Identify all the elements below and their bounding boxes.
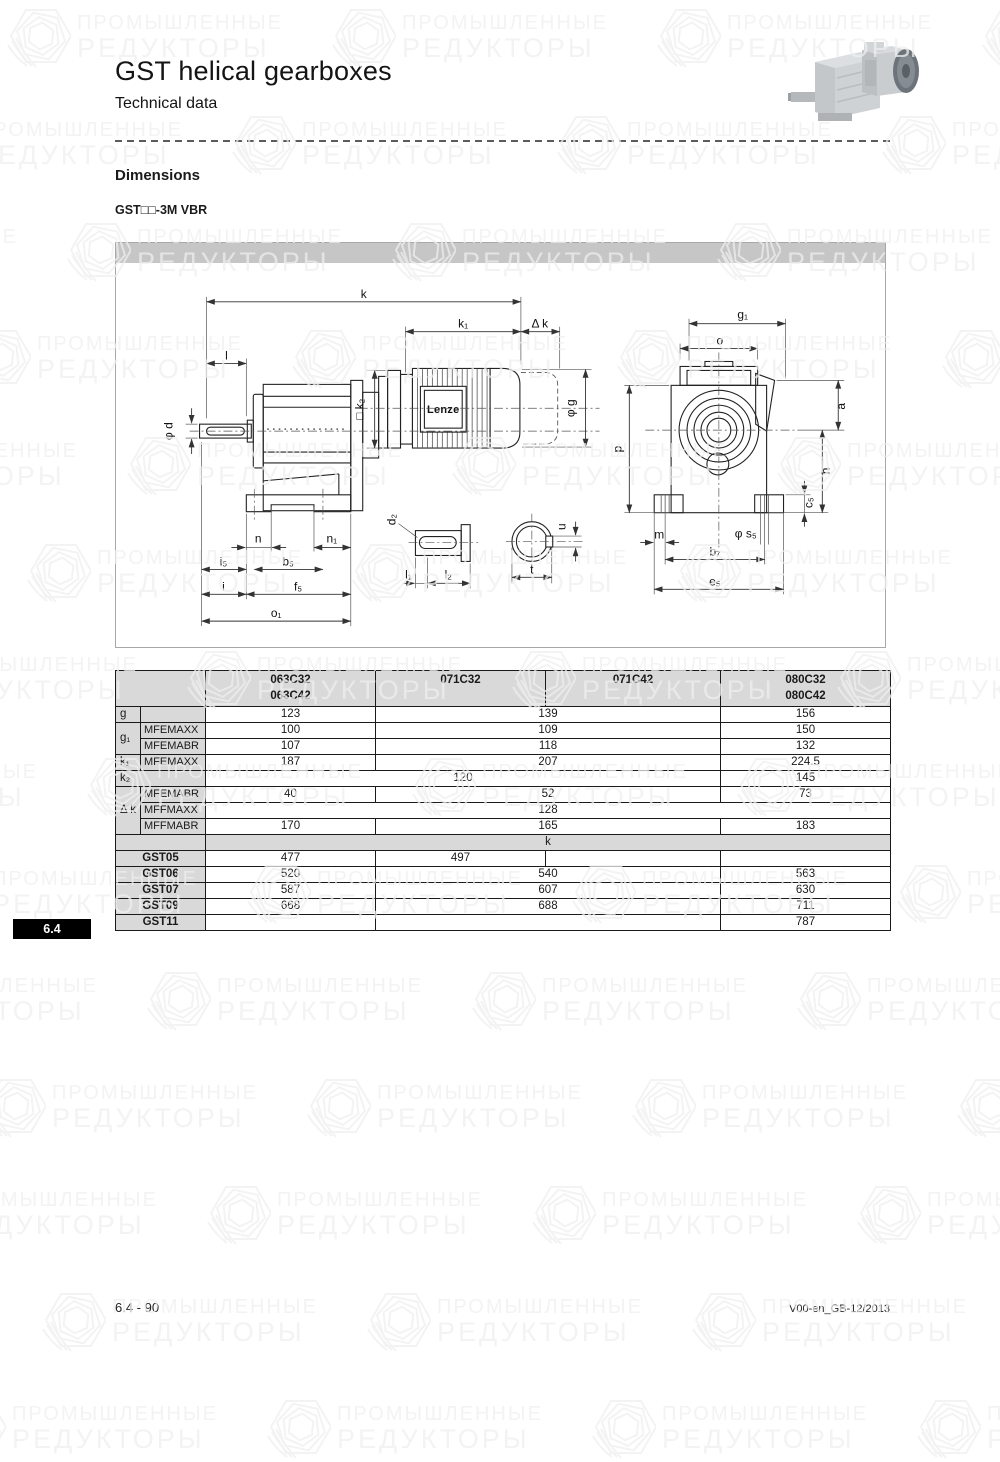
section-heading: Dimensions [115,167,200,184]
table-cell: Δ k [116,787,141,835]
table-cell: 145 [721,771,891,787]
table-row: g₁MFEMAXX100109150 [116,723,891,739]
dim-label-c5: c₅ [801,497,815,508]
watermark-text: ПРОМЫШЛЕННЫЕРЕДУКТОРЫ [337,1403,543,1455]
table-cell: 520 [206,867,376,883]
drawing-panel-bar [116,243,885,263]
table-cell [116,835,206,851]
table-row: GST09668688711 [116,899,891,915]
dim-label-phi-d: φ d [162,422,176,440]
table-row: GST07587607630 [116,883,891,899]
table-cell: 711 [721,899,891,915]
table-header-cell: 071C32 [376,671,546,707]
dim-label-p: p [610,445,624,452]
table-cell: k₁ [116,755,141,771]
dim-label-o: o [717,334,724,348]
chapter-tab: 6.4 [13,919,91,939]
table-cell: 123 [206,707,376,723]
table-cell: 170 [206,819,376,835]
dim-label-t: t [530,562,534,576]
table-row-label: GST06 [116,867,206,883]
dim-label-l: l [225,348,228,362]
dim-label-a: a [834,403,848,410]
page-subtitle: Technical data [115,95,217,113]
table-cell [376,915,721,931]
table-row: Δ kMFEMABR405273 [116,787,891,803]
table-row: MFFMAXX128 [116,803,891,819]
watermark: ПРОМЫШЛЕННЫЕРЕДУКТОРЫ [0,1396,218,1462]
table-cell: 563 [721,867,891,883]
table-cell: 40 [206,787,376,803]
dim-label-d2: d₂ [385,514,399,526]
dim-label-k2: □ k₂ [353,398,367,419]
dimension-labels: k k₁ Δ k l φ d □ k₂ φ g n n₁ i₅ b₅ i f₅ … [162,287,848,620]
brand-logo: Lenze [427,404,460,416]
table-header-cell: 071C42 [546,671,721,707]
dimension-drawing: Lenze [116,263,885,647]
footer-page-number: 6.4 - 90 [115,1300,159,1315]
table-cell: 477 [206,851,376,867]
dim-label-n: n [255,532,262,546]
table-cell: 109 [376,723,721,739]
footer-doc-code: V00-en_GB-12/2013 [600,1303,890,1315]
table-row-label: GST11 [116,915,206,931]
table-row-label: GST07 [116,883,206,899]
dim-label-phi-s5: φ s₅ [735,527,757,541]
watermark-text: ПРОМЫШЛЕННЫЕРЕДУКТОРЫ [12,1403,218,1455]
table-row-label: GST09 [116,899,206,915]
table-row: GST11787 [116,915,891,931]
table-cell: 107 [206,739,376,755]
table-cell: g [116,707,141,723]
dashed-divider [115,140,890,142]
table-cell: 688 [376,899,721,915]
table-row: MFEMABR107118132 [116,739,891,755]
table-cell: 139 [376,707,721,723]
side-view: Lenze [186,297,600,626]
table-cell: 668 [206,899,376,915]
dim-label-b5: b₅ [282,554,294,568]
table-cell: MFEMAXX [141,723,206,739]
dim-label-h: h [818,468,832,475]
table-cell: g₁ [116,723,141,755]
dim-label-k1: k₁ [458,317,468,331]
table-cell: 630 [721,883,891,899]
table-cell: 787 [721,915,891,931]
dim-label-phi-g: φ g [564,399,578,417]
watermark-hexagon-icon [915,1396,981,1462]
table-cell: 52 [376,787,721,803]
table-row-label: GST05 [116,851,206,867]
dimensions-table: 063C32 063C42071C32071C42080C32 080C42 g… [115,670,891,931]
watermark: ПРОМЫШЛЕННЫЕРЕДУКТОРЫ [915,1396,1000,1462]
watermark: ПРОМЫШЛЕННЫЕРЕДУКТОРЫ [590,1396,868,1462]
dim-label-dk: Δ k [531,317,548,331]
dim-label-m: m [654,528,664,542]
dim-label-o1: o₁ [271,606,282,620]
watermark-hexagon-icon [590,1396,656,1462]
table-row: k [116,835,891,851]
table-row: g123139156 [116,707,891,723]
table-cell: 73 [721,787,891,803]
dim-label-b7: b₇ [710,544,721,558]
table-cell: 540 [376,867,721,883]
table-body: g123139156g₁MFEMAXX100109150MFEMABR10711… [116,707,891,931]
dim-label-l2: l₂ [445,567,453,581]
dim-label-u: u [555,523,569,530]
table-cell: 118 [376,739,721,755]
table-cell [721,851,891,867]
table-cell: MFFMAXX [141,803,206,819]
table-cell: 132 [721,739,891,755]
table-cell: k₂ [116,771,206,787]
dim-label-g1: g₁ [737,308,748,322]
table-cell: MFEMAXX [141,755,206,771]
table-row: k₁MFEMAXX187207224.5 [116,755,891,771]
table-cell: 156 [721,707,891,723]
table-row: GST05477497 [116,851,891,867]
table-cell: 120 [206,771,721,787]
table-cell: 187 [206,755,376,771]
table-cell: 207 [376,755,721,771]
table-cell: 607 [376,883,721,899]
table-header: 063C32 063C42071C32071C42080C32 080C42 [116,671,891,707]
product-photo [788,40,938,125]
table-cell: 587 [206,883,376,899]
page-title: GST helical gearboxes [115,56,392,87]
watermark: ПРОМЫШЛЕННЫЕРЕДУКТОРЫ [265,1396,543,1462]
dim-label-k: k [361,287,367,301]
dim-label-i5: i₅ [220,554,228,568]
table-cell: k [206,835,891,851]
table-cell: MFEMABR [141,787,206,803]
table-cell [546,851,721,867]
table-cell: 150 [721,723,891,739]
page: { "page": { "title": "GST helical gearbo… [0,0,1000,1395]
variant-label: GST□□-3M VBR [115,203,207,217]
dim-label-f5: f₅ [294,579,302,593]
table-header-cell [116,671,206,707]
table-cell: 224.5 [721,755,891,771]
table-row: k₂120145 [116,771,891,787]
table-cell [141,707,206,723]
table-cell [206,915,376,931]
rear-view [624,319,844,595]
table-cell: 497 [376,851,546,867]
dim-label-l1: l₁ [405,567,412,581]
table-cell: 100 [206,723,376,739]
table-header-cell: 063C32 063C42 [206,671,376,707]
table-cell: MFEMABR [141,739,206,755]
drawing-panel: Lenze [115,242,886,648]
watermark-hexagon-icon [0,1396,6,1462]
watermark-hexagon-icon [265,1396,331,1462]
table-cell: MFFMABR [141,819,206,835]
dim-label-i: i [222,579,225,593]
table-header-cell: 080C32 080C42 [721,671,891,707]
dim-label-e5: e₅ [709,574,721,588]
table-cell: 165 [376,819,721,835]
watermark-text: ПРОМЫШЛЕННЫЕРЕДУКТОРЫ [987,1403,1000,1455]
table-cell: 128 [206,803,891,819]
table-row: MFFMABR170165183 [116,819,891,835]
table-cell: 183 [721,819,891,835]
dim-label-n1: n₁ [327,532,338,546]
watermark-text: ПРОМЫШЛЕННЫЕРЕДУКТОРЫ [662,1403,868,1455]
table-row: GST06520540563 [116,867,891,883]
